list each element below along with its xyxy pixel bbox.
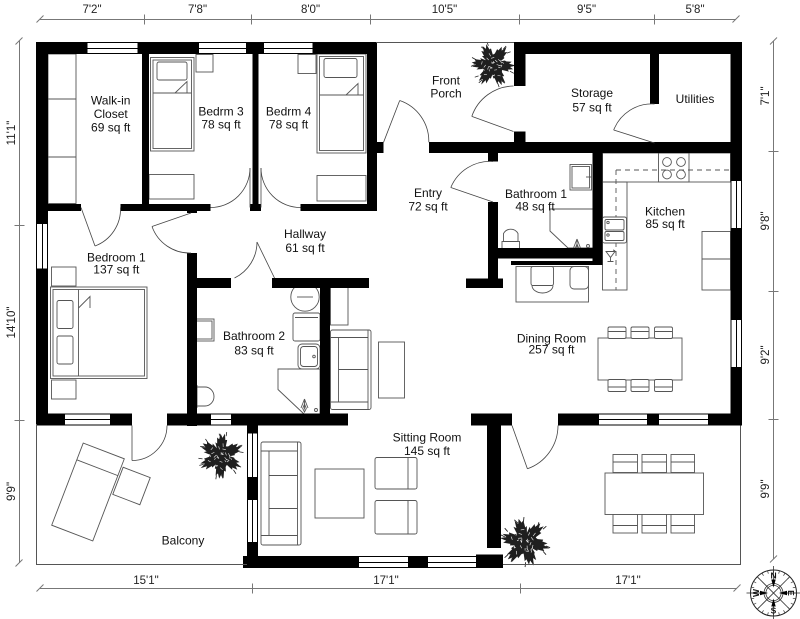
svg-text:Sitting Room: Sitting Room [393,430,462,444]
svg-text:8'0": 8'0" [301,4,320,16]
svg-text:11'1": 11'1" [6,121,18,146]
svg-text:9'8": 9'8" [760,211,772,230]
svg-text:15'1": 15'1" [133,575,158,587]
svg-text:9'9": 9'9" [760,479,772,498]
svg-text:S: S [771,606,777,616]
svg-text:10'5": 10'5" [432,4,457,16]
svg-text:78 sq ft: 78 sq ft [201,117,241,131]
svg-text:Utilities: Utilities [676,92,715,106]
svg-text:69 sq ft: 69 sq ft [91,120,131,134]
svg-text:9'2": 9'2" [760,345,772,364]
svg-text:78 sq ft: 78 sq ft [269,117,309,131]
svg-text:5'8": 5'8" [685,4,704,16]
svg-text:9'5": 9'5" [577,4,596,16]
svg-text:Walk-in: Walk-in [91,94,131,108]
svg-text:17'1": 17'1" [615,575,640,587]
svg-text:Front: Front [432,73,461,87]
svg-text:W: W [751,588,761,597]
svg-text:72 sq ft: 72 sq ft [408,200,448,214]
svg-text:7'1": 7'1" [760,86,772,105]
svg-text:Balcony: Balcony [162,534,205,548]
svg-text:Closet: Closet [94,107,129,121]
svg-text:Bathroom 2: Bathroom 2 [223,329,285,343]
svg-text:Storage: Storage [571,86,613,100]
svg-text:9'9": 9'9" [6,482,18,501]
svg-text:7'2": 7'2" [82,4,101,16]
svg-text:83 sq ft: 83 sq ft [234,343,274,357]
svg-text:61 sq ft: 61 sq ft [285,241,325,255]
svg-text:145 sq ft: 145 sq ft [404,444,451,458]
svg-text:14'10": 14'10" [6,307,18,339]
svg-text:48 sq ft: 48 sq ft [515,199,555,213]
svg-text:E: E [786,590,796,596]
svg-text:57 sq ft: 57 sq ft [572,101,612,115]
svg-text:7'8": 7'8" [188,4,207,16]
svg-text:Entry: Entry [414,186,442,200]
svg-text:Porch: Porch [430,87,461,101]
svg-text:257 sq ft: 257 sq ft [528,343,575,357]
svg-text:Hallway: Hallway [284,227,326,241]
svg-text:N: N [770,571,776,581]
svg-text:17'1": 17'1" [373,575,398,587]
svg-text:137 sq ft: 137 sq ft [93,263,140,277]
svg-text:85 sq ft: 85 sq ft [645,217,685,231]
